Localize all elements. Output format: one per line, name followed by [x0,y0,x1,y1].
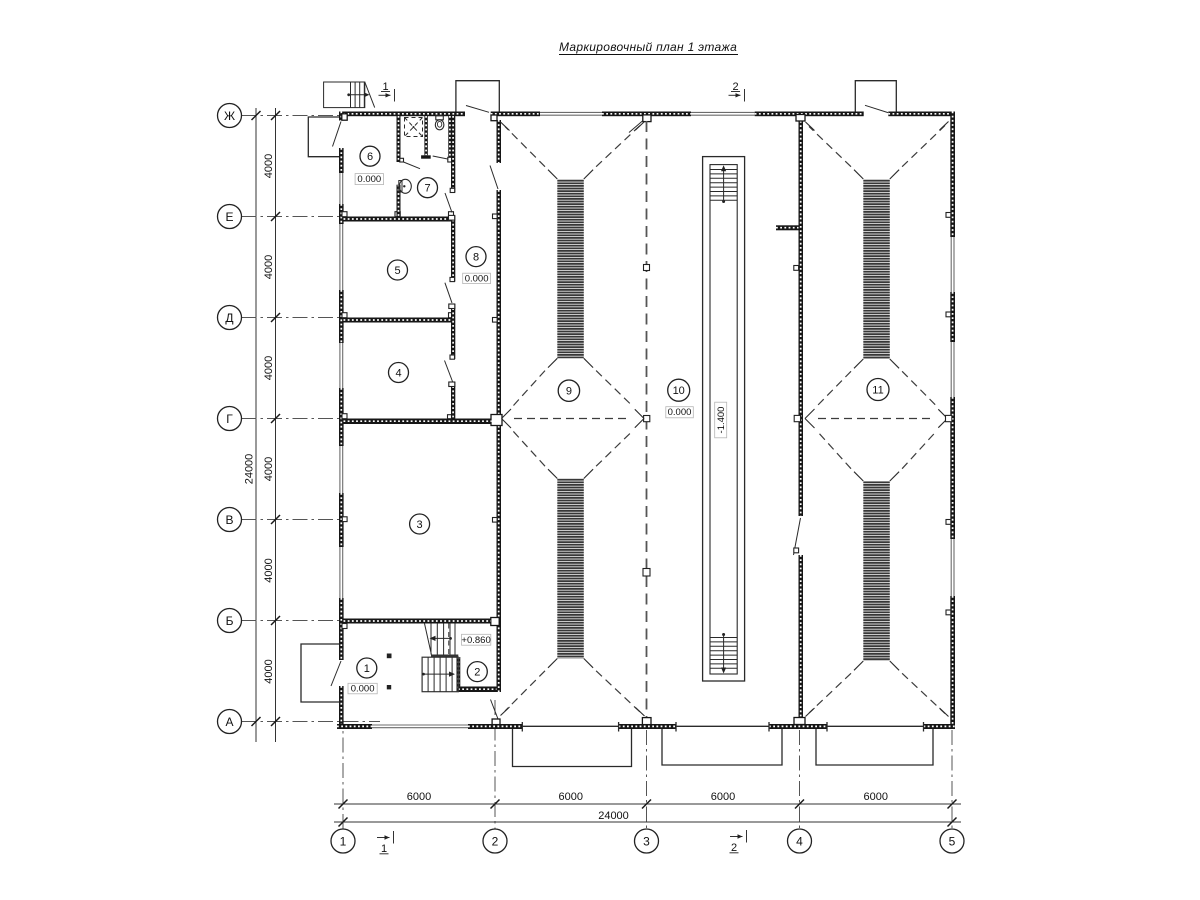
svg-text:7: 7 [424,183,430,195]
svg-text:11: 11 [872,385,883,397]
svg-text:4: 4 [395,368,401,380]
svg-text:3: 3 [643,835,650,849]
svg-text:Г: Г [226,412,233,426]
svg-text:-1.400: -1.400 [716,407,727,434]
svg-text:Ж: Ж [224,109,235,123]
svg-text:24000: 24000 [598,810,629,822]
svg-text:А: А [225,715,233,729]
svg-text:Маркировочный план 1 этажа: Маркировочный план 1 этажа [559,40,737,54]
svg-text:24000: 24000 [244,454,256,485]
svg-text:Е: Е [225,210,233,224]
svg-text:4000: 4000 [263,255,275,279]
svg-text:10: 10 [673,385,685,397]
svg-text:2: 2 [731,842,737,854]
svg-text:Б: Б [226,614,234,628]
svg-text:Д: Д [225,311,233,325]
svg-text:4000: 4000 [263,558,275,582]
svg-text:0.000: 0.000 [668,407,692,418]
svg-text:3: 3 [417,519,423,531]
svg-text:6000: 6000 [407,791,431,803]
svg-text:2: 2 [474,667,480,679]
svg-text:8: 8 [473,252,479,264]
svg-text:6: 6 [367,151,373,163]
svg-text:9: 9 [566,386,572,398]
svg-text:0.000: 0.000 [465,274,489,285]
svg-text:1: 1 [381,843,387,855]
svg-text:4000: 4000 [263,356,275,380]
svg-text:0.000: 0.000 [357,174,381,185]
svg-text:+0.860: +0.860 [461,635,490,646]
svg-text:2: 2 [492,835,499,849]
svg-text:6000: 6000 [864,791,888,803]
svg-text:1: 1 [340,835,347,849]
svg-text:5: 5 [949,835,956,849]
svg-text:4000: 4000 [263,659,275,683]
svg-text:4: 4 [796,835,803,849]
svg-text:4000: 4000 [263,154,275,178]
svg-text:В: В [225,513,233,527]
svg-text:1: 1 [364,663,370,675]
svg-text:6000: 6000 [559,791,583,803]
svg-text:6000: 6000 [711,791,735,803]
svg-text:5: 5 [394,265,400,277]
svg-text:0.000: 0.000 [351,684,375,695]
svg-text:4000: 4000 [263,457,275,481]
